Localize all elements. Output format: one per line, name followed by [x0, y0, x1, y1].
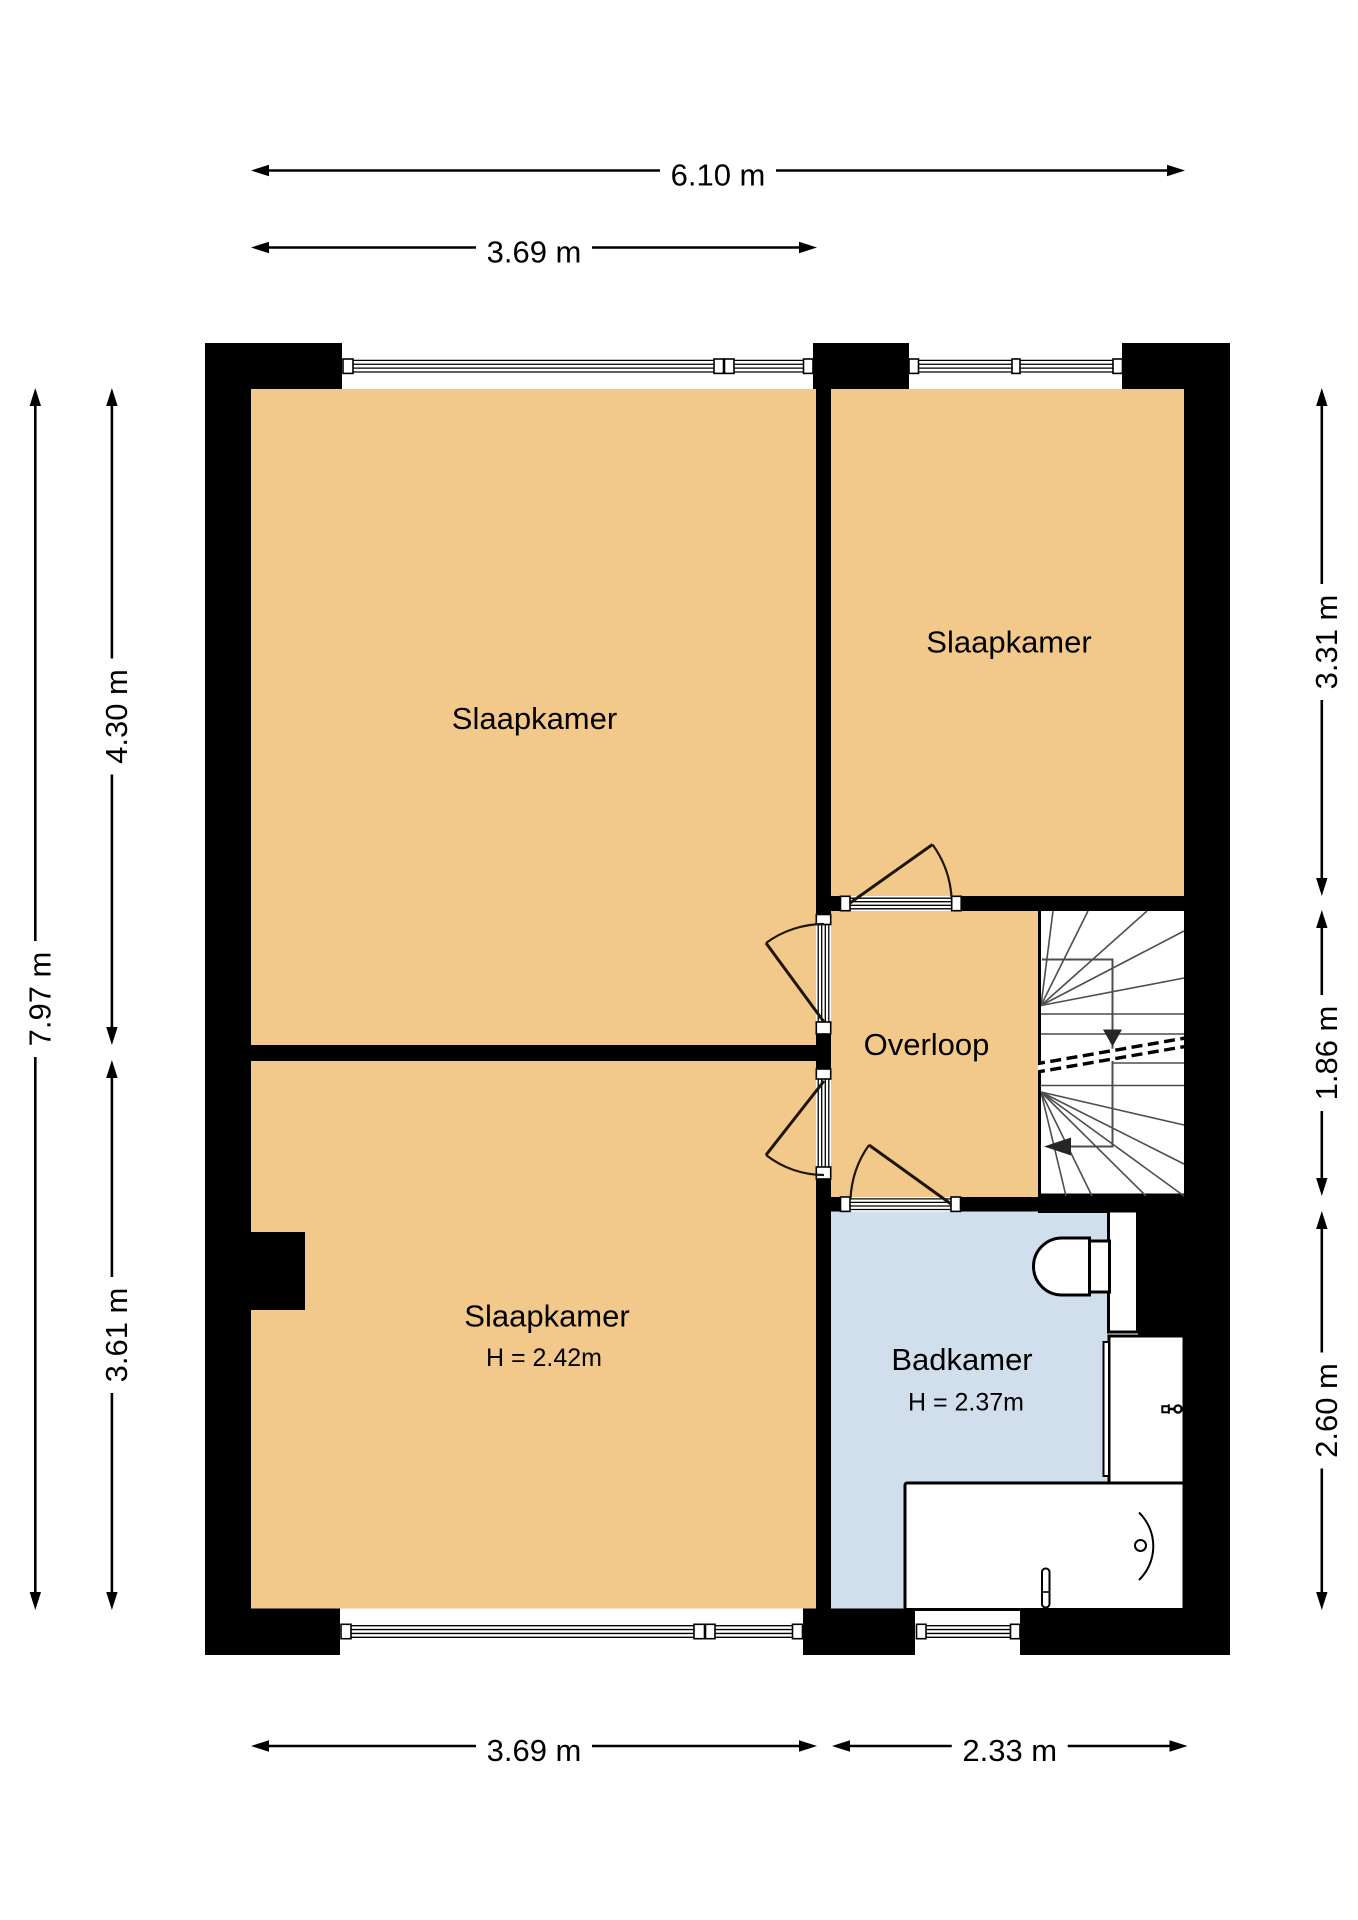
- svg-text:Overloop: Overloop: [864, 1027, 990, 1062]
- svg-text:3.31 m: 3.31 m: [1309, 595, 1344, 690]
- svg-text:H = 2.37m: H = 2.37m: [908, 1389, 1024, 1417]
- svg-text:3.69 m: 3.69 m: [487, 235, 582, 270]
- svg-text:3.61 m: 3.61 m: [99, 1288, 134, 1383]
- svg-text:7.97 m: 7.97 m: [22, 952, 57, 1047]
- svg-text:Slaapkamer: Slaapkamer: [926, 625, 1091, 660]
- svg-text:2.33 m: 2.33 m: [962, 1733, 1057, 1768]
- svg-text:H = 2.42m: H = 2.42m: [486, 1344, 602, 1372]
- svg-text:Slaapkamer: Slaapkamer: [452, 701, 617, 736]
- svg-text:3.69 m: 3.69 m: [487, 1733, 582, 1768]
- svg-text:2.60 m: 2.60 m: [1309, 1363, 1344, 1458]
- svg-text:6.10 m: 6.10 m: [671, 158, 766, 193]
- svg-text:Slaapkamer: Slaapkamer: [464, 1299, 629, 1334]
- svg-text:4.30 m: 4.30 m: [99, 669, 134, 764]
- svg-text:Badkamer: Badkamer: [891, 1342, 1032, 1377]
- svg-text:1.86 m: 1.86 m: [1309, 1006, 1344, 1101]
